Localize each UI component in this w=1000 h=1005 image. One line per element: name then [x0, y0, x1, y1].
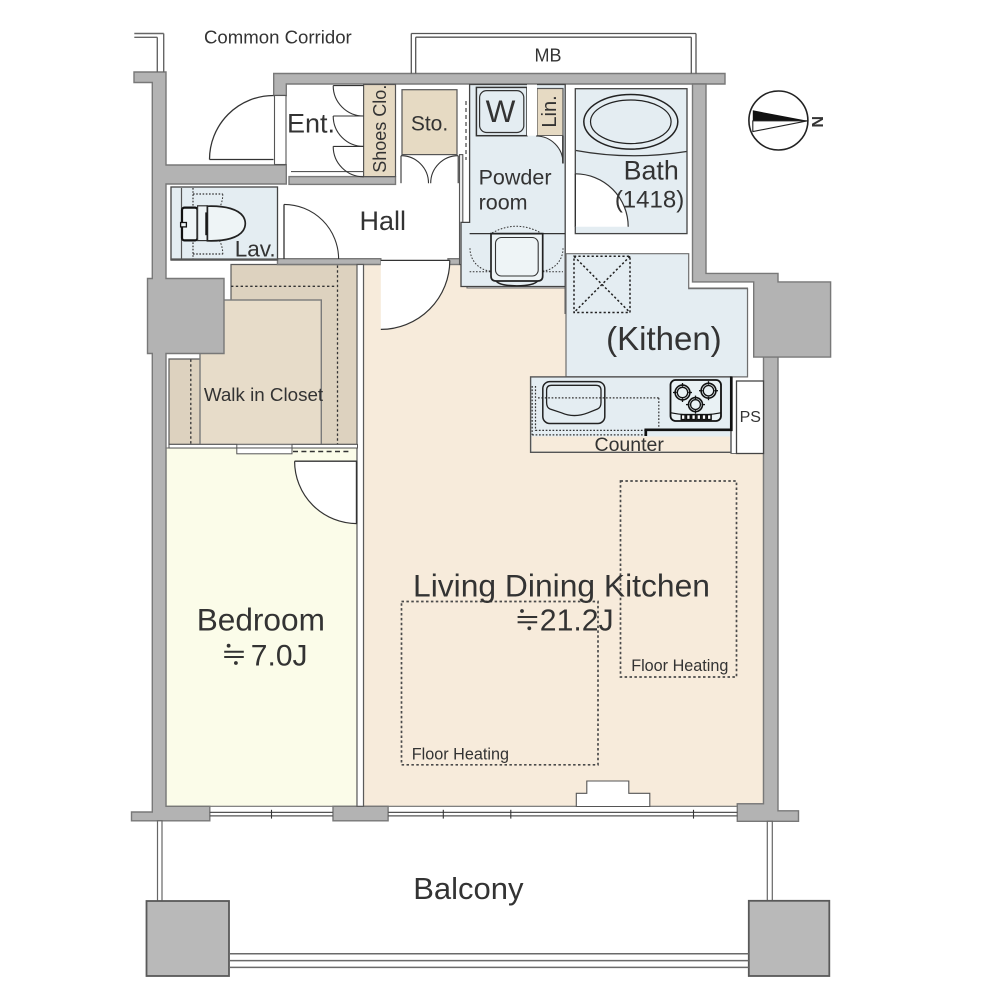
svg-text:Hall: Hall: [360, 206, 407, 236]
svg-text:W: W: [486, 93, 516, 129]
svg-text:Balcony: Balcony: [413, 871, 524, 906]
svg-text:Floor Heating: Floor Heating: [412, 746, 509, 764]
svg-text:PS: PS: [740, 409, 761, 426]
svg-text:Living Dining Kitchen: Living Dining Kitchen: [413, 568, 710, 604]
svg-text:Counter: Counter: [595, 434, 665, 456]
svg-text:Bedroom: Bedroom: [197, 601, 325, 637]
svg-text:Common Corridor: Common Corridor: [204, 27, 352, 48]
svg-text:(Kithen): (Kithen): [606, 320, 722, 357]
svg-text:Walk in Closet: Walk in Closet: [204, 384, 324, 405]
svg-text:room: room: [479, 191, 528, 215]
svg-text:N: N: [808, 116, 825, 128]
svg-text:(1418): (1418): [615, 187, 684, 214]
svg-text:Lin.: Lin.: [539, 95, 561, 127]
svg-text:MB: MB: [535, 46, 562, 66]
svg-text:7.0J: 7.0J: [251, 639, 308, 672]
svg-text:Floor Heating: Floor Heating: [631, 657, 728, 675]
svg-text:21.2J: 21.2J: [540, 605, 614, 638]
svg-text:Shoes Clo.: Shoes Clo.: [370, 85, 390, 173]
svg-text:Powder: Powder: [479, 166, 552, 190]
svg-text:Bath: Bath: [624, 155, 679, 185]
svg-text:Sto.: Sto.: [411, 113, 448, 136]
svg-text:Ent.: Ent.: [287, 109, 335, 139]
svg-text:Lav.: Lav.: [235, 237, 276, 262]
